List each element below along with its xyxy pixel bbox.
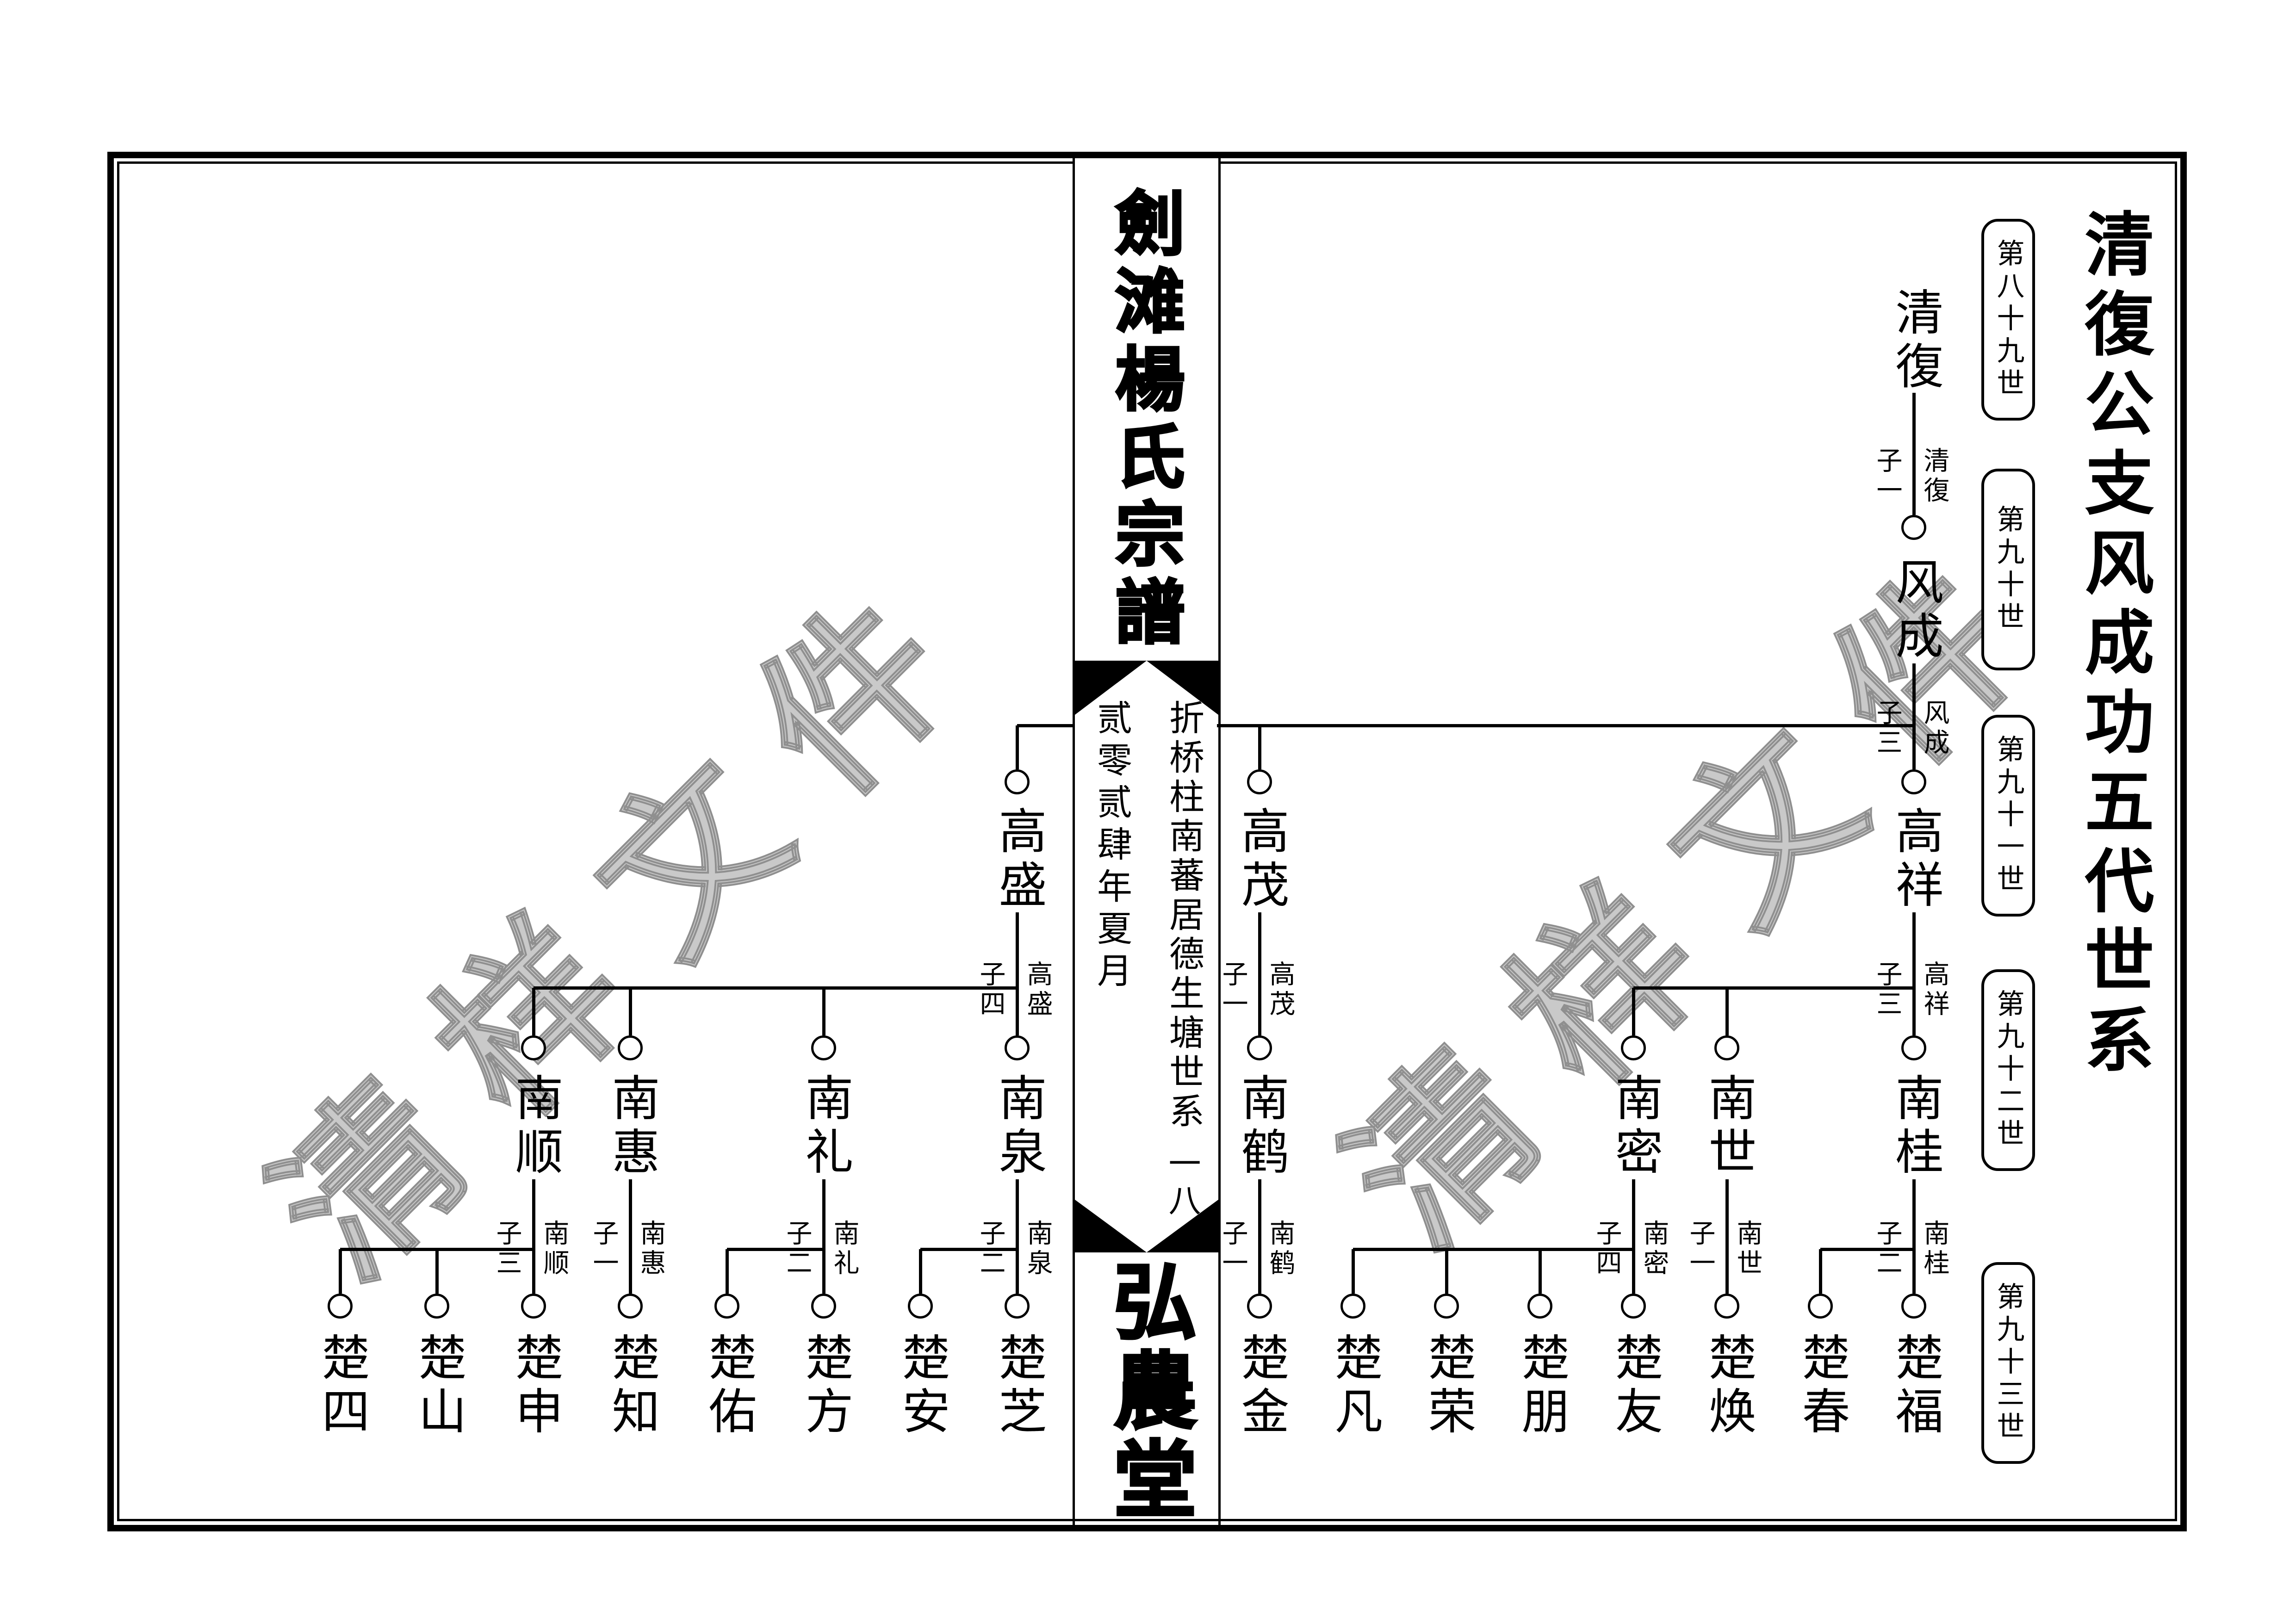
person-node-circle (1005, 1294, 1030, 1319)
tree-connector-line (1912, 1179, 1916, 1294)
person-name: 楚四 (315, 1332, 366, 1440)
parent-name-label: 南顺 (541, 1220, 567, 1279)
person-node-circle (328, 1294, 353, 1319)
sons-count-label: 子三 (1874, 960, 1900, 1020)
spine-right-rule (1218, 158, 1221, 1525)
generation-box-91: 第九十一世 (1981, 715, 2035, 917)
parent-name-label: 南泉 (1024, 1220, 1050, 1279)
tree-connector-line (1016, 725, 1019, 769)
person-node-circle (1901, 1035, 1926, 1060)
tree-connector-line (1725, 988, 1729, 1035)
generation-box-89: 第八十九世 (1981, 219, 2035, 421)
sons-count-label: 子二 (1874, 1220, 1900, 1279)
person-name: 楚佑 (701, 1332, 752, 1440)
person-name: 清復 (1888, 287, 1939, 395)
person-node-circle (811, 1294, 836, 1319)
parent-name-label: 高盛 (1024, 960, 1050, 1020)
person-node-circle (424, 1294, 449, 1319)
generation-label: 第九十一世 (1994, 735, 2022, 897)
person-node-circle (1005, 769, 1030, 794)
spine-left-rule (1073, 158, 1075, 1525)
person-node-circle (1901, 769, 1926, 794)
person-node-circle (811, 1035, 836, 1060)
person-name: 南密 (1608, 1073, 1659, 1180)
person-node-circle (1621, 1294, 1646, 1319)
tree-connector-line (339, 1249, 342, 1294)
sons-count-label: 子四 (977, 960, 1003, 1020)
person-node-circle (1901, 1294, 1926, 1319)
person-name: 楚芝 (992, 1332, 1043, 1440)
parent-name-label: 南密 (1641, 1220, 1667, 1279)
tree-connector-line (919, 1249, 922, 1294)
person-name: 楚朋 (1514, 1332, 1565, 1440)
tree-connector-line (1258, 725, 1261, 769)
generation-box-90: 第九十世 (1981, 469, 2035, 670)
tree-connector-line (1912, 912, 1916, 1035)
person-node-circle (1901, 515, 1926, 540)
person-node-circle (1621, 1035, 1646, 1060)
person-name: 南泉 (992, 1073, 1043, 1180)
person-name: 楚山 (411, 1332, 462, 1440)
book-title: 劍滩楊氏宗譜 (1110, 187, 1179, 654)
sons-count-label: 子一 (1874, 447, 1900, 506)
generation-label: 第九十世 (1994, 505, 2022, 634)
page-number: 一八 (1166, 1146, 1198, 1220)
tree-connector-line (532, 988, 535, 1035)
tree-connector-line (1539, 1249, 1542, 1294)
person-name: 楚春 (1795, 1332, 1846, 1440)
person-name: 南桂 (1888, 1073, 1939, 1180)
inner-border-bottom (117, 1519, 2177, 1521)
tree-connector-line (1632, 1179, 1635, 1294)
sons-count-label: 子四 (1594, 1220, 1620, 1279)
person-name: 高茂 (1234, 806, 1285, 913)
hall-name-clip: 弘農堂 (1078, 1255, 1217, 1519)
person-node-circle (1434, 1294, 1459, 1319)
person-node-circle (1808, 1294, 1833, 1319)
person-name: 楚凡 (1328, 1332, 1378, 1440)
inner-border-right (2175, 161, 2177, 1521)
parent-name-label: 高茂 (1267, 960, 1293, 1020)
person-node-circle (521, 1035, 546, 1060)
tree-connector-line (1725, 1179, 1729, 1294)
person-name: 高盛 (992, 806, 1043, 913)
person-node-circle (521, 1294, 546, 1319)
sons-count-label: 子一 (1220, 1220, 1246, 1279)
person-node-circle (1247, 1294, 1272, 1319)
person-name: 楚友 (1608, 1332, 1659, 1440)
person-name: 南惠 (605, 1073, 656, 1180)
sons-count-label: 子一 (590, 1220, 616, 1279)
tree-connector-line (822, 1179, 825, 1294)
inner-border-left (117, 161, 119, 1521)
tree-connector-line (1912, 393, 1916, 515)
spine-branch-title: 折桥柱南蕃居德生塘世系 (1166, 700, 1201, 1132)
hall-name: 弘農堂 (1106, 1258, 1189, 1519)
parent-name-label: 南礼 (831, 1220, 857, 1279)
person-name: 南鹤 (1234, 1073, 1285, 1180)
sons-count-label: 子二 (784, 1220, 810, 1279)
tree-connector-line (1258, 912, 1261, 1035)
parent-name-label: 南世 (1734, 1220, 1760, 1279)
tree-connector-line (435, 1249, 439, 1294)
generation-label: 第九十二世 (1994, 989, 2022, 1151)
person-node-circle (1714, 1294, 1739, 1319)
tree-connector-line (1016, 1179, 1019, 1294)
genealogy-page: 清样文件 清样文件 劍滩楊氏宗譜 折桥柱南蕃居德生塘世系 贰零贰肆年夏月 一八 … (0, 0, 2296, 1623)
person-name: 楚申 (508, 1332, 559, 1440)
tree-sibling-rail (1217, 724, 1915, 727)
spine-date: 贰零贰肆年夏月 (1094, 700, 1129, 994)
tree-connector-line (822, 988, 825, 1035)
person-node-circle (908, 1294, 933, 1319)
person-name: 楚方 (798, 1332, 849, 1440)
person-name: 楚焕 (1701, 1332, 1752, 1440)
person-node-circle (1527, 1294, 1552, 1319)
parent-name-label: 南鹤 (1267, 1220, 1293, 1279)
generation-box-93: 第九十三世 (1981, 1262, 2035, 1464)
person-name: 风成 (1888, 557, 1939, 664)
tree-connector-line (1819, 1249, 1822, 1294)
parent-name-label: 南惠 (638, 1220, 664, 1279)
person-node-circle (714, 1294, 739, 1319)
parent-name-label: 风成 (1921, 699, 1947, 758)
tree-connector-line (1352, 1249, 1355, 1294)
parent-name-label: 南桂 (1921, 1220, 1947, 1279)
tree-sibling-rail (534, 986, 1018, 990)
tree-connector-line (726, 1249, 729, 1294)
tree-connector-line (1016, 912, 1019, 1035)
person-node-circle (1247, 769, 1272, 794)
sons-count-label: 子三 (1874, 699, 1900, 758)
sons-count-label: 子一 (1687, 1220, 1713, 1279)
person-name: 高祥 (1888, 806, 1939, 913)
person-name: 楚知 (605, 1332, 656, 1440)
person-node-circle (1340, 1294, 1365, 1319)
tree-connector-line (1632, 988, 1635, 1035)
person-node-circle (618, 1294, 643, 1319)
sons-count-label: 子一 (1220, 960, 1246, 1020)
sons-count-label: 子二 (977, 1220, 1003, 1279)
person-node-circle (618, 1035, 643, 1060)
person-name: 南顺 (508, 1073, 559, 1180)
person-name: 楚荣 (1421, 1332, 1472, 1440)
person-name: 楚安 (895, 1332, 946, 1440)
person-name: 南礼 (798, 1073, 849, 1180)
tree-connector-line (1912, 663, 1916, 769)
tree-sibling-rail (1017, 724, 1074, 727)
tree-connector-line (629, 988, 632, 1035)
person-node-circle (1714, 1035, 1739, 1060)
generation-label: 第八十九世 (1994, 239, 2022, 401)
person-node-circle (1005, 1035, 1030, 1060)
generation-label: 第九十三世 (1994, 1282, 2022, 1444)
parent-name-label: 清復 (1921, 447, 1947, 506)
tree-connector-line (629, 1179, 632, 1294)
generation-box-92: 第九十二世 (1981, 969, 2035, 1171)
parent-name-label: 高祥 (1921, 960, 1947, 1020)
person-name: 楚金 (1234, 1332, 1285, 1440)
inner-border-top-right (1218, 161, 2177, 164)
page-title: 清復公支风成功五代世系 (2079, 208, 2148, 1084)
sons-count-label: 子三 (494, 1220, 520, 1279)
person-node-circle (1247, 1035, 1272, 1060)
person-name: 南世 (1701, 1073, 1752, 1180)
inner-border-top-left (117, 161, 1073, 164)
tree-connector-line (532, 1179, 535, 1294)
person-name: 楚福 (1888, 1332, 1939, 1440)
tree-connector-line (1258, 1179, 1261, 1294)
tree-connector-line (1445, 1249, 1448, 1294)
